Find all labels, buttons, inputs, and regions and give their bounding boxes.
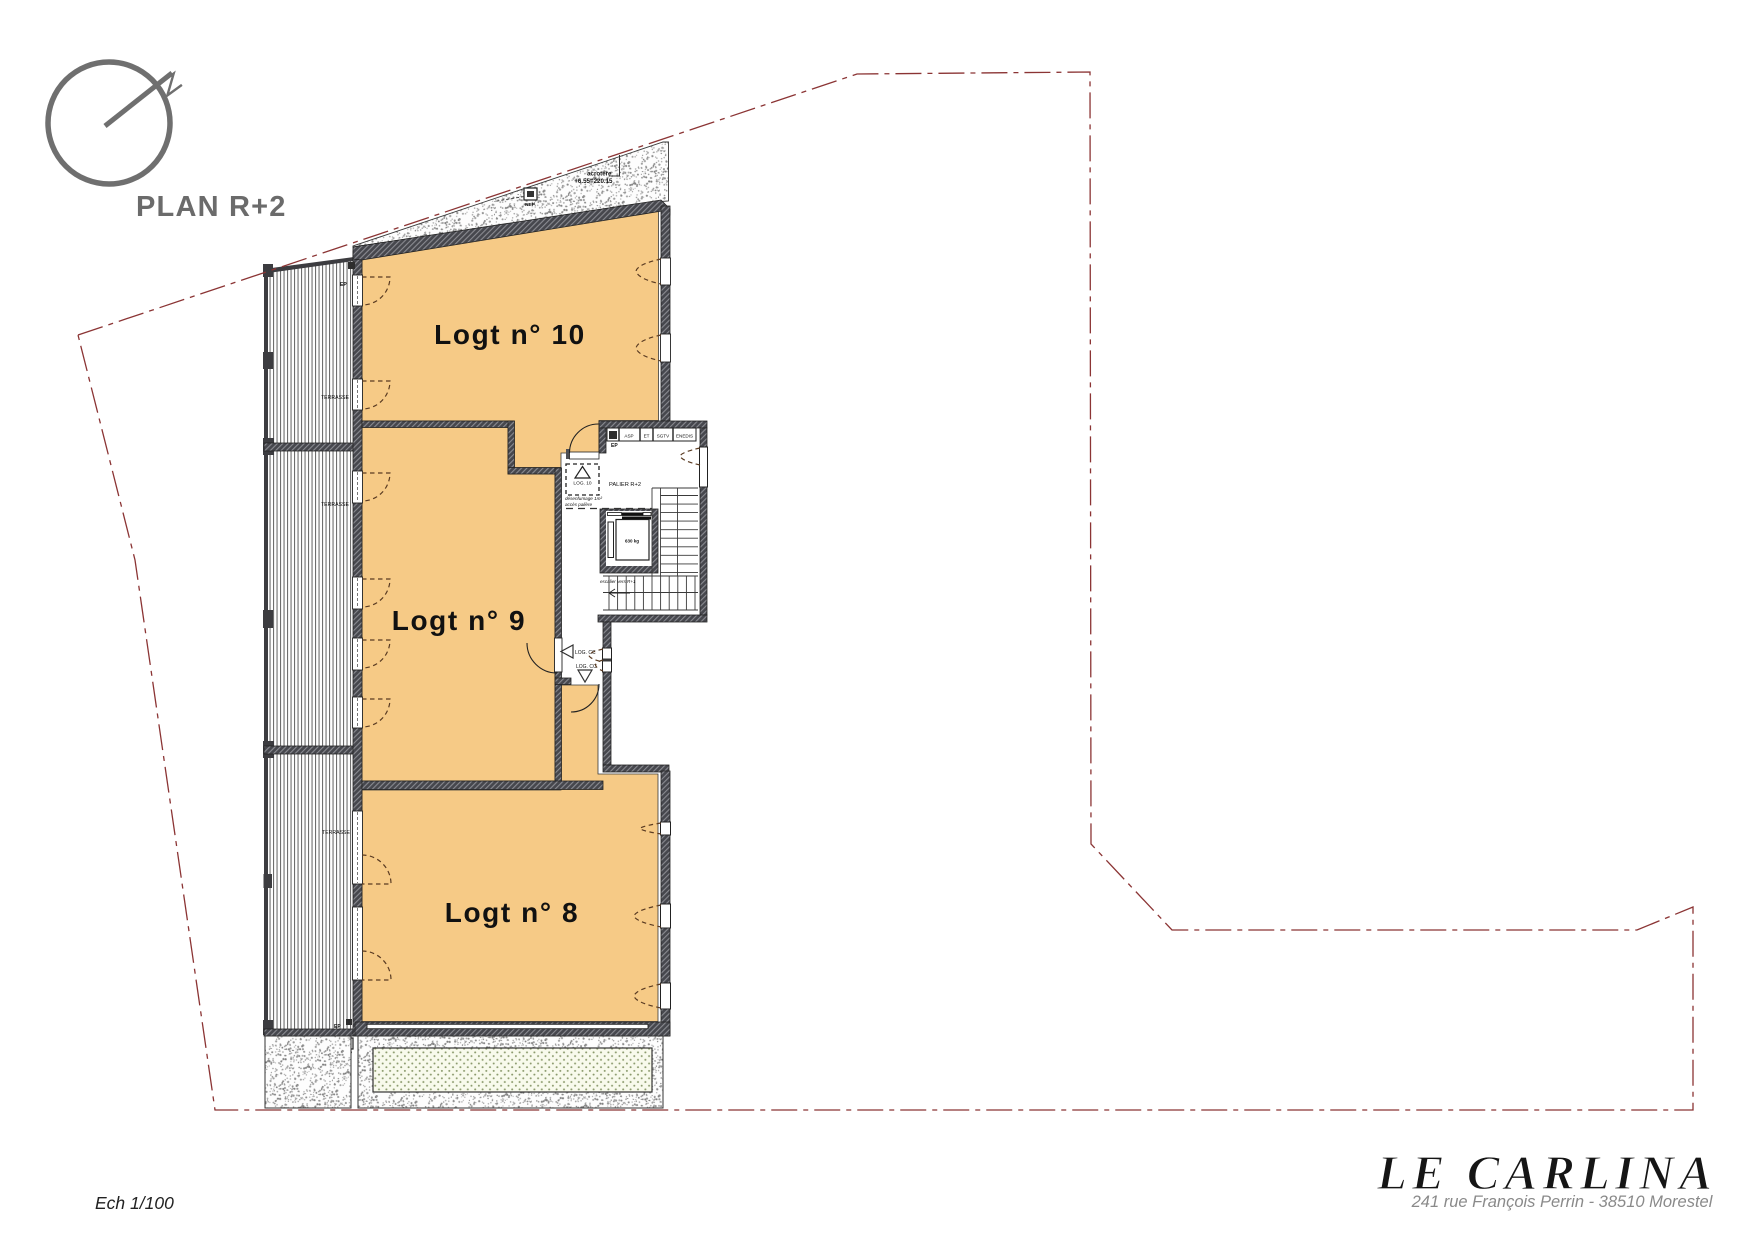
svg-text:+6.55=220.15: +6.55=220.15 (574, 178, 613, 185)
svg-text:EP: EP (334, 1024, 341, 1030)
svg-text:NEP: NEP (525, 202, 536, 208)
svg-text:escalier vers R+1: escalier vers R+1 (600, 579, 636, 584)
svg-text:LOG. 10: LOG. 10 (573, 481, 591, 487)
svg-text:241 rue François Perrin - 3851: 241 rue François Perrin - 38510 Morestel (1411, 1193, 1714, 1211)
svg-text:630 kg: 630 kg (625, 539, 639, 544)
svg-text:Logt n° 8: Logt n° 8 (445, 897, 579, 928)
svg-text:Logt n° 10: Logt n° 10 (434, 319, 586, 350)
svg-text:ENEDIS: ENEDIS (676, 434, 693, 439)
svg-text:accès palière: accès palière (565, 502, 593, 507)
svg-text:Logt n° 9: Logt n° 9 (392, 605, 526, 636)
svg-text:ET: ET (644, 434, 650, 439)
svg-text:ASP: ASP (624, 434, 633, 439)
svg-text:PALIER R+2: PALIER R+2 (609, 482, 641, 488)
svg-text:TERRASSE: TERRASSE (322, 830, 351, 836)
svg-text:Ech 1/100: Ech 1/100 (95, 1193, 174, 1213)
svg-text:TERRASSE: TERRASSE (321, 502, 350, 508)
svg-text:EP: EP (611, 443, 618, 449)
svg-text:LOG. CC: LOG. CC (575, 650, 596, 656)
svg-text:TERRASSE: TERRASSE (321, 395, 350, 401)
svg-text:SGTV: SGTV (657, 434, 670, 439)
svg-text:acrotère: acrotère (587, 171, 612, 178)
svg-text:EP: EP (340, 282, 347, 288)
svg-text:LOG. CC: LOG. CC (576, 664, 597, 670)
svg-text:LE CARLINA: LE CARLINA (1376, 1145, 1717, 1200)
svg-text:PLAN R+2: PLAN R+2 (136, 191, 287, 223)
svg-text:désenfumage 1m²: désenfumage 1m² (565, 496, 602, 501)
